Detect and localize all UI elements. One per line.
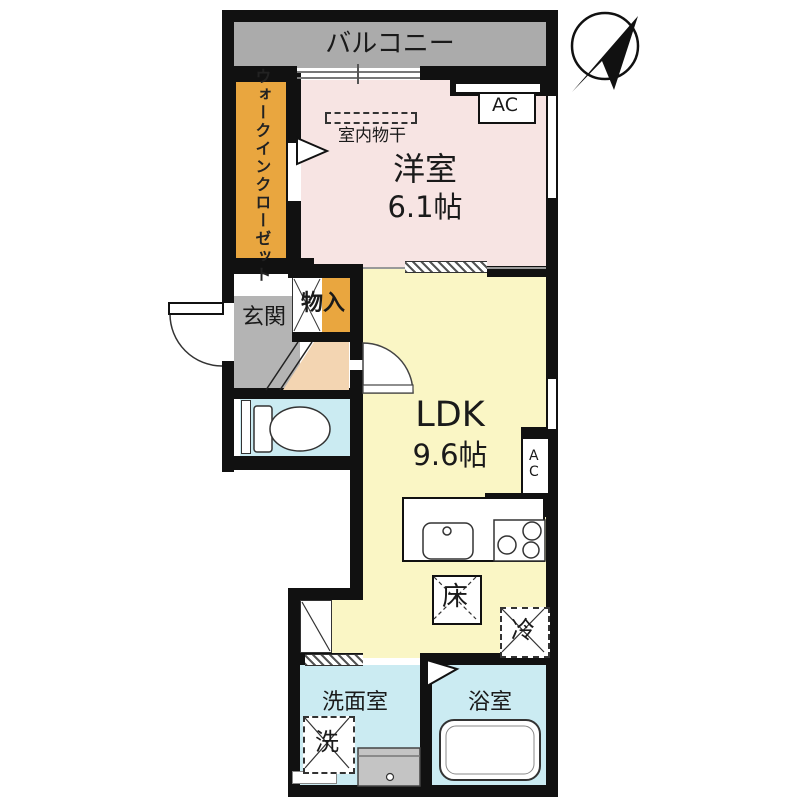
wall-wash-bath-divider: [420, 653, 432, 785]
wall-balcony-right-seg: [420, 66, 546, 80]
genkan-label: 玄関: [234, 304, 294, 332]
toilet-door: [241, 400, 251, 454]
ldk-left-gap: [350, 360, 363, 370]
wall-left-lower: [288, 588, 300, 797]
bathroom-label: 浴室: [450, 690, 530, 716]
room-bathroom: [432, 665, 546, 785]
wic-label-line2: クローゼット: [253, 176, 270, 284]
washer-label: 洗: [303, 718, 351, 768]
entrance-opening: [222, 303, 234, 361]
wall-bottom: [288, 785, 558, 797]
balcony-label: バルコニー: [300, 30, 480, 60]
floor-plan: バルコニー ウォークインクローゼット 室内物干 洋室 6.1帖 AC AC 物入…: [0, 0, 800, 800]
window-ldk-right: [548, 378, 556, 430]
wic-label: ウォークインクローゼット: [236, 96, 286, 256]
wic-door-opening: [288, 143, 301, 201]
western-room-label: 洋室: [355, 152, 495, 188]
sliding-door-western-ldk: [405, 261, 487, 273]
wall-toilet-bottom: [222, 456, 362, 470]
floor-storage-label: 床: [432, 576, 478, 620]
wall-storage-bottom: [292, 332, 362, 342]
balcony-window-tick: [357, 64, 359, 84]
wall-toilet-top: [222, 388, 362, 399]
niche-box: [300, 600, 332, 653]
ldk-size: 9.6帖: [380, 438, 520, 472]
compass-icon: [572, 16, 638, 92]
wall-top: [222, 10, 558, 22]
storage-label: 物入: [292, 290, 354, 318]
washroom-label: 洗面室: [305, 690, 405, 716]
room-toilet: [240, 396, 350, 458]
sliding-door-washroom: [305, 654, 363, 666]
drying-rod-icon: [325, 112, 417, 124]
refrigerator-label: 冷: [500, 608, 546, 653]
ac-label-ldk: AC: [521, 440, 546, 488]
entrance-door-arc: [170, 314, 222, 366]
kitchen-counter: [402, 497, 545, 562]
compass-circle: [572, 13, 638, 79]
ldk-label: LDK: [380, 395, 520, 435]
indoor-drying-label: 室内物干: [322, 126, 422, 148]
wall-double-top-inset: [456, 84, 540, 92]
ac-label-western: AC: [478, 92, 532, 120]
entrance-door-leaf: [169, 303, 223, 314]
window-western-right: [548, 95, 556, 199]
room-ldk-lower-left: [332, 598, 372, 658]
western-room-size: 6.1帖: [355, 190, 495, 224]
wic-label-line1: ウォークイン: [253, 68, 270, 176]
